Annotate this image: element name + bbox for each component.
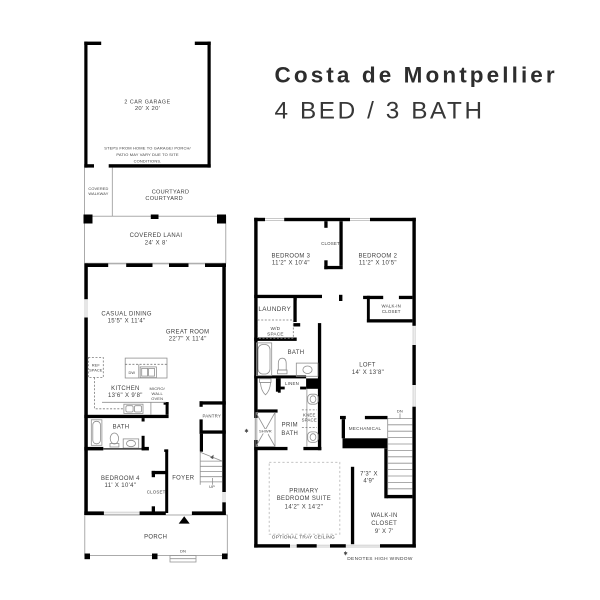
svg-text:COURTYARD: COURTYARD (145, 196, 183, 202)
svg-text:GREAT ROOM: GREAT ROOM (166, 330, 210, 336)
svg-text:CASUAL DINING: CASUAL DINING (101, 311, 152, 317)
svg-text:LAUNDRY: LAUNDRY (258, 306, 291, 313)
svg-text:Costa de Montpellier: Costa de Montpellier (275, 63, 558, 88)
svg-text:2 CAR GARAGE: 2 CAR GARAGE (124, 99, 170, 105)
svg-text:BATH: BATH (113, 425, 130, 431)
svg-text:SPACE: SPACE (267, 332, 284, 337)
svg-text:DW: DW (128, 370, 135, 375)
svg-text:STEPS FROM HOME TO GARAGE/ POR: STEPS FROM HOME TO GARAGE/ PORCH/ (104, 146, 191, 151)
svg-text:BEDROOM 3: BEDROOM 3 (272, 253, 311, 259)
svg-text:OPTIONAL TRAY CEILING: OPTIONAL TRAY CEILING (272, 534, 335, 539)
svg-text:DN: DN (180, 549, 186, 554)
svg-text:BATH: BATH (281, 431, 298, 437)
svg-text:SPACE: SPACE (302, 417, 317, 422)
svg-text:PRIM: PRIM (282, 423, 298, 429)
svg-text:SPACE: SPACE (89, 368, 103, 373)
svg-text:LINEN: LINEN (285, 381, 299, 386)
svg-text:OVEN: OVEN (151, 396, 163, 401)
svg-text:WALK-IN: WALK-IN (382, 304, 402, 309)
svg-text:20' X 20': 20' X 20' (135, 106, 160, 112)
svg-text:DENOTES HIGH WINDOW: DENOTES HIGH WINDOW (347, 556, 413, 562)
svg-text:BEDROOM SUITE: BEDROOM SUITE (277, 496, 331, 502)
svg-text:UP: UP (209, 484, 215, 489)
svg-text:CLOSET: CLOSET (147, 489, 166, 494)
svg-text:CLOSET: CLOSET (382, 309, 401, 314)
svg-text:24' X 8': 24' X 8' (145, 241, 167, 247)
svg-text:PORCH: PORCH (144, 534, 167, 540)
svg-text:W/D: W/D (271, 326, 281, 331)
svg-text:FOYER: FOYER (172, 475, 195, 481)
svg-text:COVERED LANAI: COVERED LANAI (130, 233, 183, 239)
svg-text:14' X 13'8": 14' X 13'8" (352, 370, 384, 376)
svg-text:14'2" X 14'2": 14'2" X 14'2" (285, 504, 323, 510)
svg-text:COURTYARD: COURTYARD (152, 189, 190, 195)
svg-text:BATH: BATH (288, 350, 305, 356)
svg-text:7'3" X: 7'3" X (360, 471, 378, 477)
svg-text:WALK-IN: WALK-IN (371, 513, 398, 519)
svg-text:BEDROOM 4: BEDROOM 4 (101, 476, 140, 482)
svg-text:CLOSET: CLOSET (371, 521, 397, 527)
svg-text:9' X 7': 9' X 7' (375, 529, 394, 535)
svg-text:WALKWAY: WALKWAY (88, 191, 108, 196)
svg-text:BEDROOM 2: BEDROOM 2 (359, 253, 398, 259)
svg-text:LOFT: LOFT (359, 362, 376, 368)
svg-text:11'2" X 10'4": 11'2" X 10'4" (272, 261, 310, 267)
svg-text:15'5" X 11'4": 15'5" X 11'4" (108, 319, 146, 325)
svg-text:PRIMARY: PRIMARY (289, 489, 318, 495)
svg-text:PATIO MAY VARY DUE TO SITE: PATIO MAY VARY DUE TO SITE (116, 152, 179, 157)
svg-text:MECHANICAL: MECHANICAL (349, 426, 382, 431)
svg-text:CONDITIONS.: CONDITIONS. (134, 158, 162, 163)
svg-text:PANTRY: PANTRY (202, 414, 221, 419)
svg-text:11' X 10'4": 11' X 10'4" (104, 483, 136, 489)
svg-text:22'7" X 11'4": 22'7" X 11'4" (169, 337, 207, 343)
svg-text:4 BED / 3 BATH: 4 BED / 3 BATH (275, 98, 485, 125)
svg-text:SHWR: SHWR (259, 429, 272, 434)
svg-text:CLOSET: CLOSET (321, 241, 340, 246)
svg-text:11'2" X 10'5": 11'2" X 10'5" (359, 261, 397, 267)
svg-text:4'9": 4'9" (363, 479, 374, 485)
svg-text:13'6" X 9'8": 13'6" X 9'8" (108, 393, 143, 399)
svg-text:DN: DN (397, 408, 403, 413)
svg-text:KITCHEN: KITCHEN (111, 386, 140, 392)
